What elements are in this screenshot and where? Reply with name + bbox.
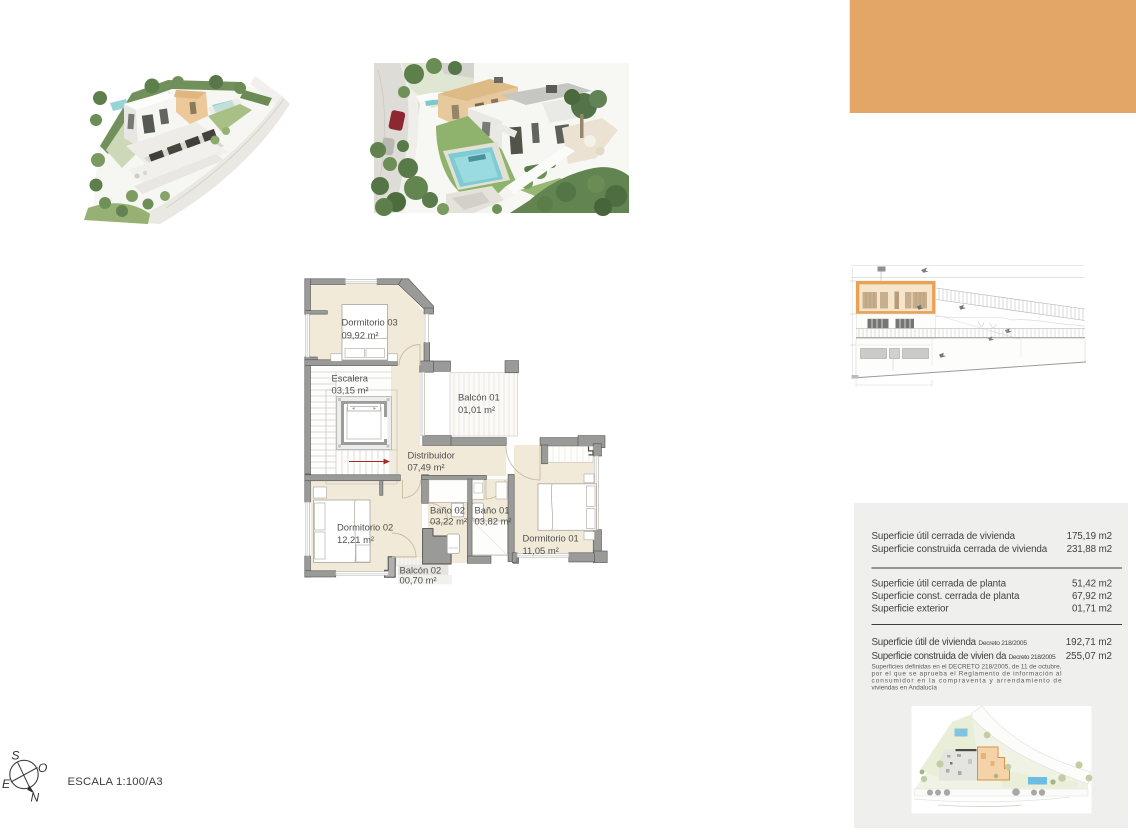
svg-text:Dormitorio 01: Dormitorio 01 xyxy=(523,533,579,544)
svg-text:192,71 m2: 192,71 m2 xyxy=(1066,637,1112,648)
svg-text:Distribuidor: Distribuidor xyxy=(408,450,455,461)
svg-text:07,49 m²: 07,49 m² xyxy=(408,462,445,473)
svg-text:Escalera: Escalera xyxy=(332,373,369,384)
svg-text:viviendas en Andalucía: viviendas en Andalucía xyxy=(872,685,938,692)
svg-text:E: E xyxy=(2,777,11,791)
svg-text:51,42 m2: 51,42 m2 xyxy=(1072,579,1112,590)
svg-text:12,21 m²: 12,21 m² xyxy=(337,534,374,545)
svg-text:Balcón 01: Balcón 01 xyxy=(458,392,500,403)
svg-text:231,88 m2: 231,88 m2 xyxy=(1067,544,1112,555)
svg-text:Dormitorio 03: Dormitorio 03 xyxy=(342,317,398,328)
svg-text:255,07 m2: 255,07 m2 xyxy=(1066,651,1112,662)
svg-text:Superficie exterior: Superficie exterior xyxy=(872,604,950,615)
svg-text:Superficie útil cerrada de pla: Superficie útil cerrada de planta xyxy=(872,579,1007,590)
svg-text:Superficie útil cerrada de viv: Superficie útil cerrada de vivienda xyxy=(872,531,1016,542)
svg-text:175,19 m2: 175,19 m2 xyxy=(1067,531,1112,542)
svg-text:Baño 01: Baño 01 xyxy=(475,505,510,516)
svg-text:Superficies definidas en el DE: Superficies definidas en el DECRETO 218/… xyxy=(872,664,1062,671)
svg-text:Superficie construida cerrada: Superficie construida cerrada de viviend… xyxy=(872,544,1048,555)
svg-text:Dormitorio 02: Dormitorio 02 xyxy=(337,522,393,533)
svg-text:03,15 m²: 03,15 m² xyxy=(332,385,369,396)
svg-text:11,05 m²: 11,05 m² xyxy=(523,545,559,556)
svg-text:por el que se aprueba el Regla: por el que se aprueba el Reglamento de i… xyxy=(872,671,1062,678)
svg-text:03,22 m²: 03,22 m² xyxy=(430,516,467,527)
svg-text:09,92 m²: 09,92 m² xyxy=(342,330,379,341)
svg-text:03,82 m²: 03,82 m² xyxy=(475,516,512,527)
svg-text:01,71 m2: 01,71 m2 xyxy=(1072,604,1112,615)
svg-text:67,92 m2: 67,92 m2 xyxy=(1072,591,1112,602)
svg-text:Superficie const. cerrada de p: Superficie const. cerrada de planta xyxy=(872,591,1021,602)
svg-text:N: N xyxy=(31,791,40,805)
svg-text:O: O xyxy=(38,761,47,775)
svg-text:consumidor en la compraventa y: consumidor en la compraventa y arrendami… xyxy=(872,678,1062,685)
svg-text:Baño 02: Baño 02 xyxy=(430,505,465,516)
svg-text:01,01 m²: 01,01 m² xyxy=(458,404,495,415)
svg-text:ESCALA 1:100/A3: ESCALA 1:100/A3 xyxy=(68,776,163,788)
svg-text:00,70 m²: 00,70 m² xyxy=(400,575,437,586)
svg-text:S: S xyxy=(12,749,20,763)
